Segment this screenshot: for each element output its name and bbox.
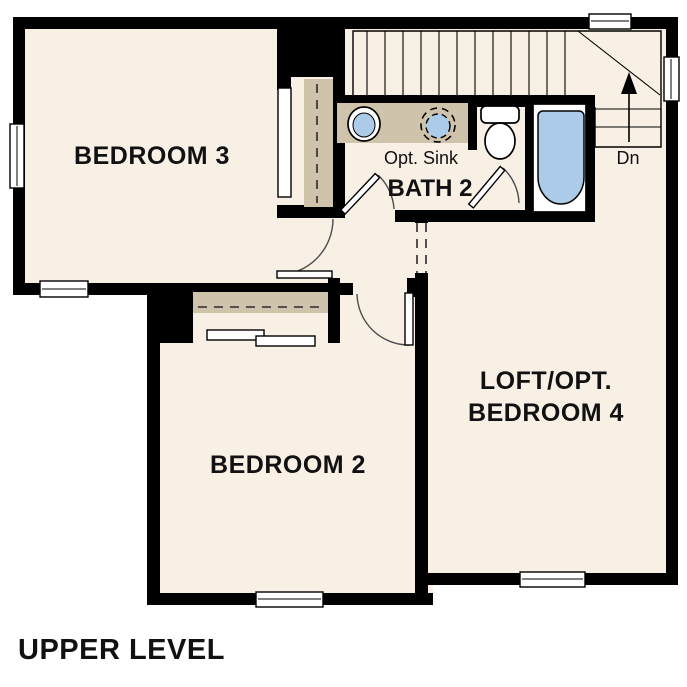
- bedroom3-closet: [278, 79, 333, 207]
- window: [40, 281, 88, 297]
- window: [589, 14, 631, 29]
- window: [664, 57, 679, 101]
- room-label-loft-line1: LOFT/OPT.: [480, 367, 612, 395]
- opt-sink-label: Opt. Sink: [384, 148, 459, 168]
- door-leaf: [405, 293, 413, 345]
- window: [520, 572, 585, 587]
- closet-door-panel: [278, 88, 291, 197]
- room-label-loft-line2: BEDROOM 4: [468, 399, 624, 427]
- wall: [328, 278, 340, 343]
- floor-plan-page: BEDROOM 3 BEDROOM 2 LOFT/OPT. BEDROOM 4 …: [0, 0, 687, 687]
- window: [10, 124, 24, 188]
- closet-shelf: [193, 292, 328, 313]
- page-title: UPPER LEVEL: [18, 634, 225, 666]
- wall: [13, 17, 678, 29]
- room-label-bedroom3: BEDROOM 3: [74, 142, 230, 170]
- room-label-bedroom2: BEDROOM 2: [210, 451, 366, 479]
- toilet: [481, 106, 519, 159]
- closet-shelf: [304, 79, 333, 207]
- wall: [468, 103, 477, 150]
- wall: [415, 273, 428, 605]
- floor-plan-drawing: BEDROOM 3 BEDROOM 2 LOFT/OPT. BEDROOM 4 …: [0, 0, 687, 687]
- wall: [147, 283, 160, 605]
- closet-bypass-door: [256, 336, 315, 346]
- room-label-bath2: BATH 2: [388, 175, 473, 202]
- window: [256, 592, 323, 607]
- stairs-down-label: Dn: [616, 148, 639, 168]
- bathtub: [533, 104, 586, 212]
- wall: [666, 17, 678, 585]
- door-leaf: [277, 271, 332, 278]
- sink: [348, 107, 380, 141]
- wall: [277, 17, 345, 77]
